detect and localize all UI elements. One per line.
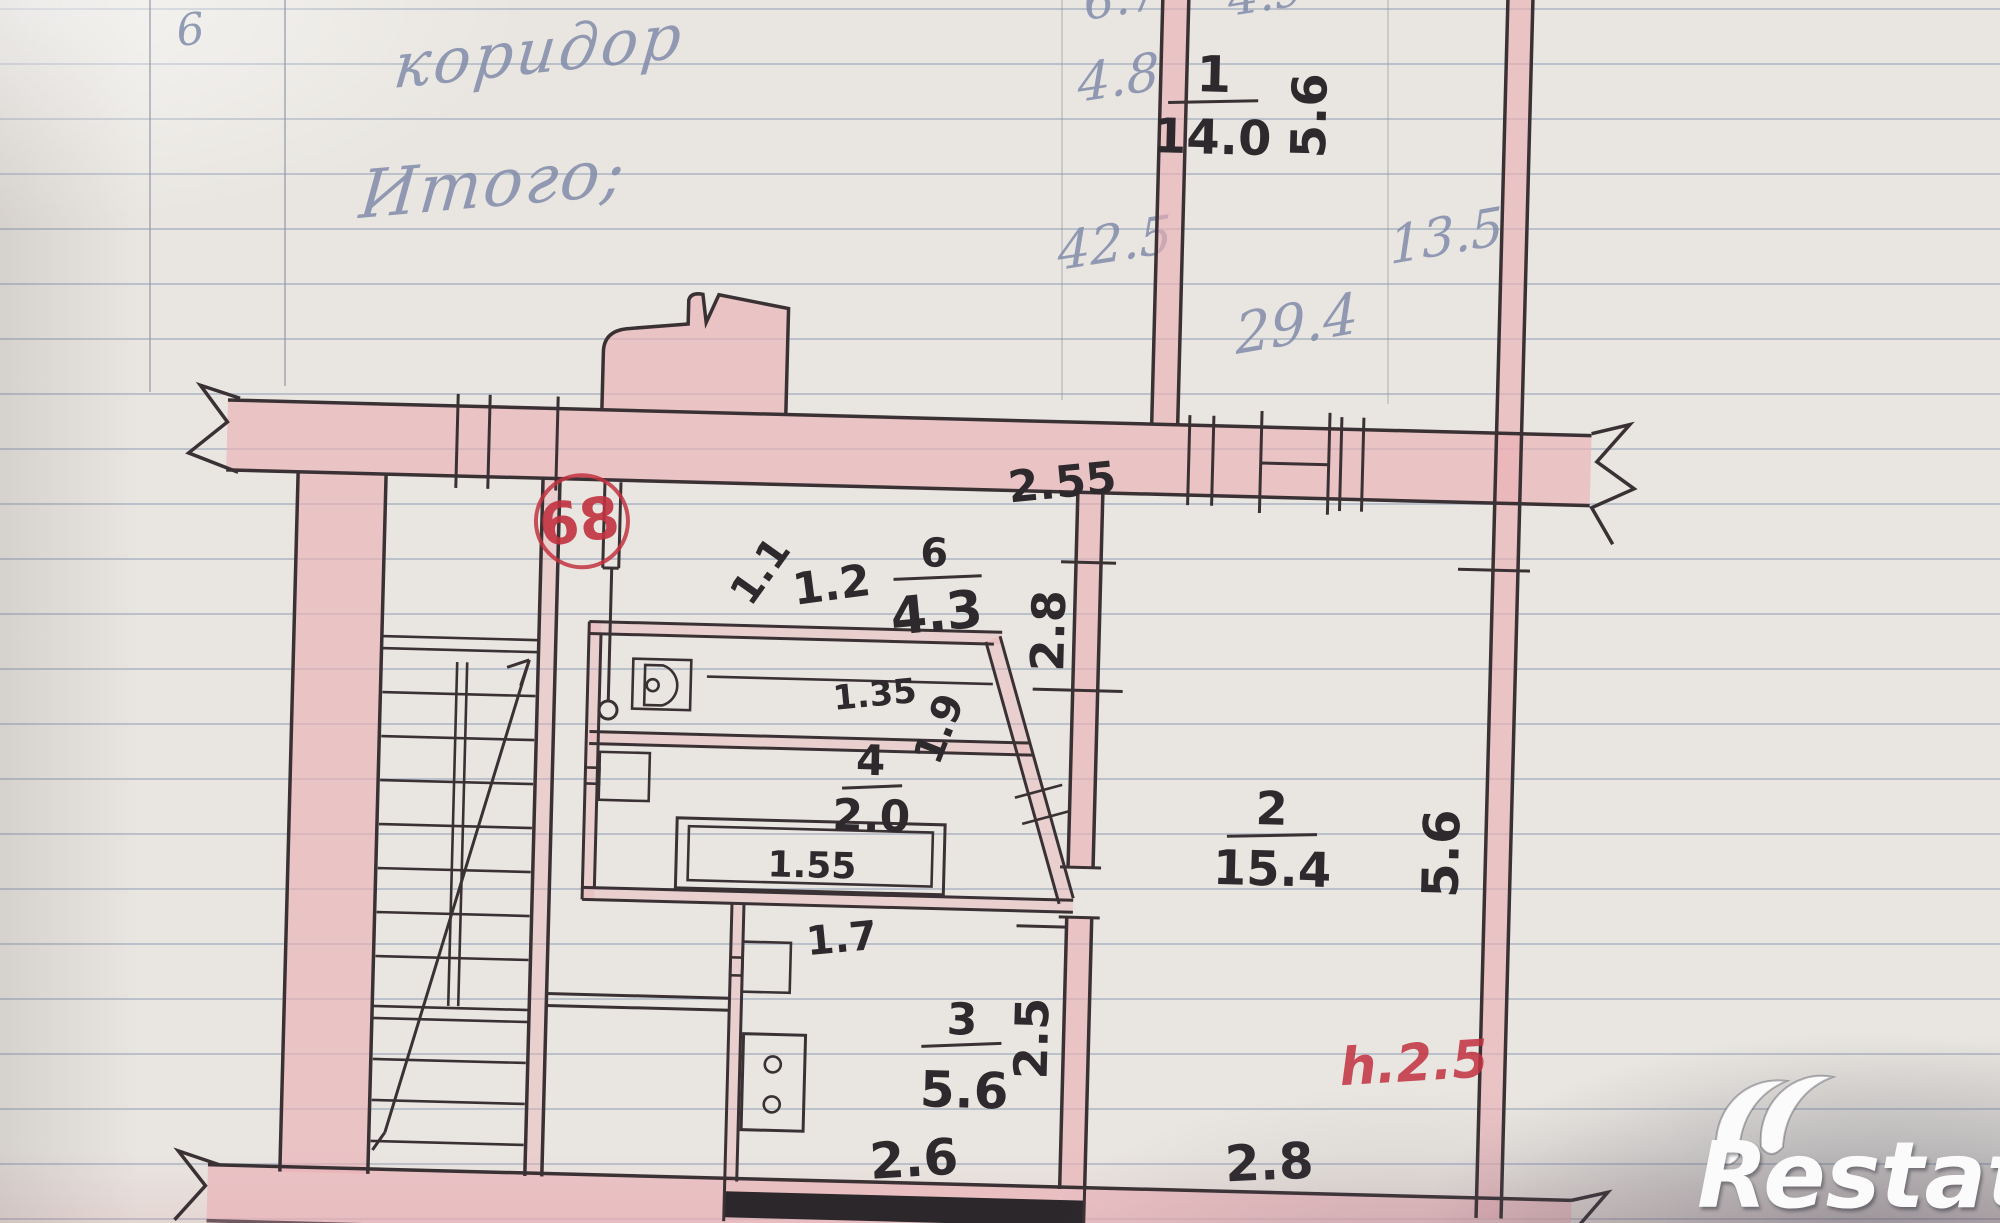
ink-labels: 1 14.0 5.6 2.55 1.1 6 4.3 1.2 2.8 1.35 1… <box>706 33 1517 1207</box>
kitchen <box>542 899 809 1184</box>
room3-area: 5.6 <box>919 1060 1009 1120</box>
dim-1-55: 1.55 <box>767 844 857 887</box>
dim-2-8-bottom: 2.8 <box>1224 1132 1315 1194</box>
floor-plan-drawing: 6 коридор Итого; 4.8 42.5 13.5 29.4 6.7 … <box>0 0 2000 1223</box>
clipped-value-right: 4.9 <box>1222 0 1307 28</box>
living-area-value: 29.4 <box>1233 281 1359 368</box>
floorplan-photo: 6 коридор Итого; 4.8 42.5 13.5 29.4 6.7 … <box>0 0 2000 1223</box>
ceiling-height-note: h.2.5 <box>1338 1029 1490 1098</box>
dim-1-1: 1.1 <box>721 529 800 613</box>
pencil-handwriting: 6 коридор Итого; 4.8 42.5 13.5 29.4 6.7 … <box>174 0 1505 368</box>
room4-area: 2.0 <box>832 790 911 843</box>
margin-row-number: 6 <box>174 3 207 57</box>
dim-2-8-vert: 2.8 <box>1020 589 1076 672</box>
corridor-label: коридор <box>390 0 687 103</box>
restate-watermark: Restate <box>1655 1055 2000 1223</box>
door-knob <box>599 701 617 719</box>
total-label: Итого; <box>356 132 630 234</box>
room6-area: 4.3 <box>888 579 985 648</box>
room2-area: 15.4 <box>1212 840 1332 899</box>
restate-logo-text: Restate <box>1697 1122 2000 1223</box>
wall-break-right <box>1589 424 1636 545</box>
dim-1-7: 1.7 <box>804 913 879 966</box>
col2-value: 13.5 <box>1388 197 1504 277</box>
dim-1-2: 1.2 <box>790 555 874 616</box>
dim-1-35: 1.35 <box>831 671 918 719</box>
room4-number: 4 <box>856 736 887 786</box>
room3-number: 3 <box>946 994 978 1046</box>
dim-2-6: 2.6 <box>868 1128 960 1191</box>
dim-2-55: 2.55 <box>1006 452 1119 513</box>
room6-number: 6 <box>920 530 949 577</box>
stove-icon <box>741 1034 805 1132</box>
corridor-area-value: 4.8 <box>1076 42 1160 115</box>
room1-area: 14.0 <box>1152 108 1272 167</box>
room2-number: 2 <box>1255 781 1288 836</box>
apartment-number: 68 <box>535 483 623 560</box>
room1-number: 1 <box>1196 45 1232 104</box>
apartment-number-stamp: 68 <box>533 474 629 568</box>
dim-2-5-vert: 2.5 <box>1004 997 1060 1080</box>
toilet-icon <box>632 659 691 711</box>
dim-right-5-6: 5.6 <box>1411 809 1471 899</box>
dim-top-5-6: 5.6 <box>1281 72 1339 158</box>
wall-break-bottom-right <box>1570 1191 1612 1223</box>
clipped-value-left: 6.7 <box>1079 0 1164 32</box>
